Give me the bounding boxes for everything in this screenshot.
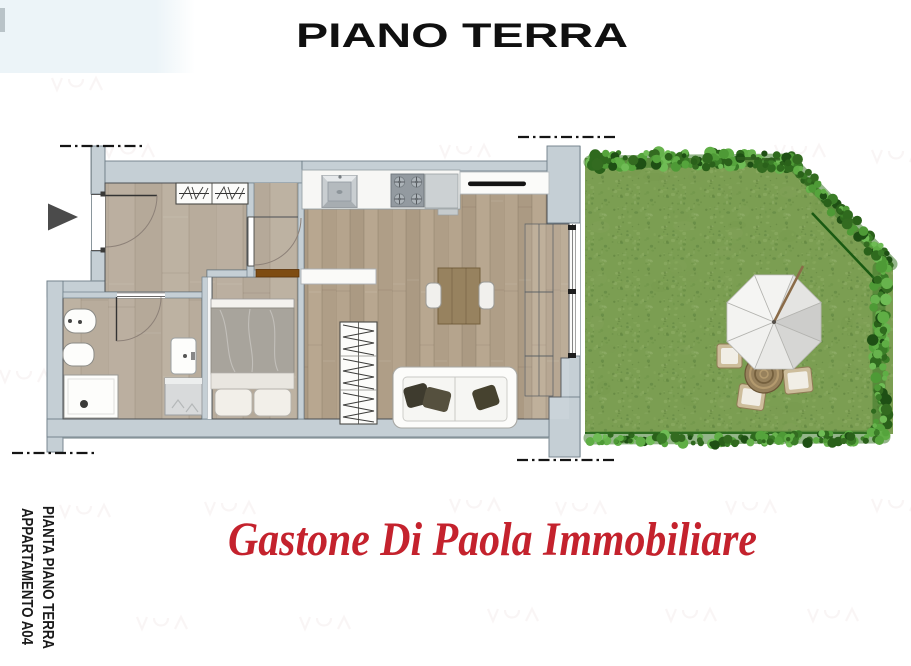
svg-text:PIANTA PIANO TERRA: PIANTA PIANO TERRA <box>39 506 56 649</box>
svg-text:PIANO TERRA: PIANO TERRA <box>296 17 628 55</box>
svg-text:Gastone Di Paola Immobiliare: Gastone Di Paola Immobiliare <box>228 513 757 566</box>
svg-text:APPARTAMENTO A04: APPARTAMENTO A04 <box>18 508 35 645</box>
